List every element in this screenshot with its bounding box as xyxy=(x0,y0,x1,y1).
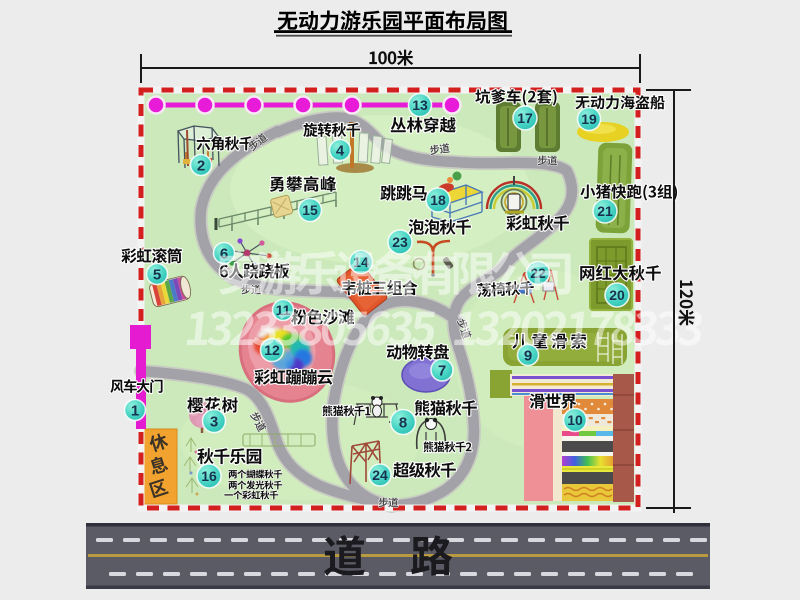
svg-text:10: 10 xyxy=(567,412,583,428)
svg-text:2: 2 xyxy=(197,157,205,174)
svg-text:13: 13 xyxy=(412,97,428,113)
svg-text:17: 17 xyxy=(517,110,533,126)
svg-text:20: 20 xyxy=(609,287,625,303)
svg-text:7: 7 xyxy=(438,362,446,379)
svg-text:23: 23 xyxy=(392,234,408,250)
svg-text:24: 24 xyxy=(372,467,388,483)
svg-text:4: 4 xyxy=(336,142,345,159)
svg-text:9: 9 xyxy=(524,347,532,364)
svg-text:3: 3 xyxy=(210,413,218,430)
svg-text:18: 18 xyxy=(430,192,446,208)
svg-text:1: 1 xyxy=(131,402,139,419)
svg-text:21: 21 xyxy=(597,203,613,219)
svg-text:19: 19 xyxy=(581,111,597,127)
svg-text:5: 5 xyxy=(153,266,161,283)
svg-text:8: 8 xyxy=(399,414,407,431)
svg-text:15: 15 xyxy=(302,202,318,218)
svg-text:16: 16 xyxy=(201,468,217,484)
